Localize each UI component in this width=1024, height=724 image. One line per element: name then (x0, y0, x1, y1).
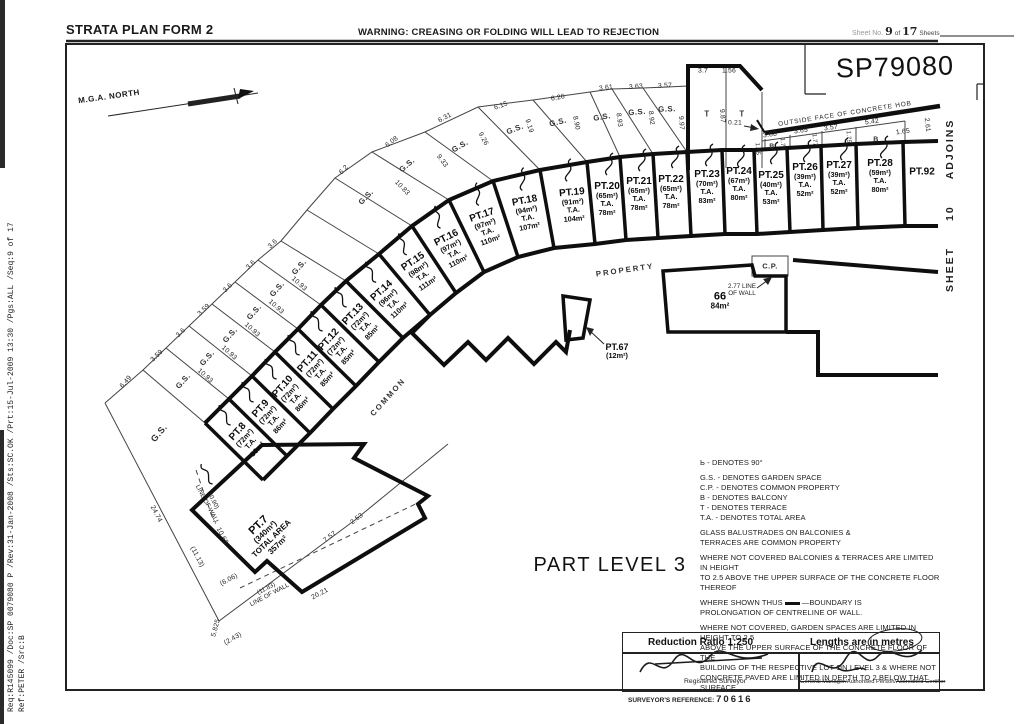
lot-pt22: PT.22(65m²) T.A.78m² (658, 174, 684, 210)
cert-kept: Authorised Person/ (847, 679, 896, 685)
adjoins-word: ADJOINS (944, 119, 956, 180)
dimension: 1.56 (722, 68, 736, 75)
legend-note: GLASS BALUSTRADES ON BALCONIES & (700, 528, 942, 538)
lot-pt25: PT.25(40m²) T.A.53m² (758, 170, 784, 206)
lot-pt26: PT.26(39m²) T.A.52m² (792, 162, 818, 198)
reduction-ratio: Reduction Ratio 1:250 (648, 637, 753, 648)
balcony-label: B (769, 144, 775, 151)
surveyor-reference: SURVEYOR'S REFERENCE: 70616 (628, 694, 753, 705)
dimension: 9.87 (718, 109, 726, 123)
strata-plan-sheet: STRATA PLAN FORM 2 WARNING: CREASING OR … (0, 0, 1024, 724)
lot-pt27: PT.27(39m²) T.A.52m² (826, 160, 852, 196)
cert-struck: General Manager/ (800, 679, 847, 685)
dimension: 9.97 (677, 116, 685, 130)
legend-note: —BOUNDARY IS (802, 598, 862, 607)
common-property-label: C.P. (762, 262, 778, 271)
scan-metadata: Req:R145099 /Doc:SP 0079080 P /Rev:31-Ja… (6, 56, 28, 712)
dimension: 1.75 (754, 143, 761, 156)
lot-pt20: PT.20(65m²) T.A.78m² (594, 181, 620, 217)
dimension: 0.21 (728, 120, 742, 127)
lot-66: 6684m² (711, 290, 730, 311)
legend-b: B - DENOTES BALCONY (700, 493, 942, 503)
garden-space-label: G.S. (658, 104, 676, 114)
warning-text: WARNING: CREASING OR FOLDING WILL LEAD T… (358, 27, 659, 38)
lengths-note: Lengths are in metres (810, 637, 914, 648)
lot-pt67: PT.67(12m²) (605, 342, 628, 360)
form-title: STRATA PLAN FORM 2 (66, 22, 213, 37)
plan-number: SP79080 (806, 50, 985, 86)
registered-surveyor-label: Registered Surveyor (660, 678, 770, 685)
scan-artifact (0, 0, 5, 168)
sheet-word: Sheets (919, 30, 939, 37)
legend-note: BUILDING OF THE RESPECTIVE LOT ON LEVEL … (700, 663, 942, 673)
scan-metadata-line1: Req:R145099 /Doc:SP 0079080 P /Rev:31-Ja… (6, 56, 17, 712)
legend-gs: G.S. - DENOTES GARDEN SPACE (700, 473, 942, 483)
scan-metadata-line2: Ref:PETER /Src:B (17, 56, 28, 712)
lot-pt92: PT.92 (909, 166, 935, 177)
garden-space-label: G.S. (628, 107, 646, 118)
legend-note: TO 2.5 ABOVE THE UPPER SURFACE OF THE CO… (700, 573, 942, 593)
legend: Ь - DENOTES 90° G.S. - DENOTES GARDEN SP… (700, 458, 942, 693)
boundary-bar-icon (785, 602, 800, 605)
dimension: 1.75 (845, 131, 852, 144)
sheet-of: of (895, 30, 900, 37)
dimension: 3.63 (629, 83, 643, 91)
certifier-label: General Manager/Authorised Person/Accred… (800, 679, 938, 685)
sheet-number: Sheet No. 9 of 17 Sheets (852, 25, 940, 38)
legend-cp: C.P. - DENOTES COMMON PROPERTY (700, 483, 942, 493)
adjoins-sheet-word: SHEET (944, 247, 956, 292)
legend-note: WHERE NOT COVERED BALCONIES & TERRACES A… (700, 553, 942, 573)
dimension: 1.73 (779, 138, 786, 151)
adjoins-sheet-10: SHEET 10 ADJOINS (944, 92, 956, 292)
legend-ta: T.A. - DENOTES TOTAL AREA (700, 513, 942, 523)
cert-struck: Accredited Certifier (896, 679, 945, 685)
sheet-no: 9 (885, 25, 893, 38)
sheet-label: Sheet No. (852, 30, 883, 37)
legend-90: - DENOTES 90° (707, 458, 763, 467)
terrace-label: T (704, 110, 709, 119)
level-title: PART LEVEL 3 (500, 554, 720, 577)
dimension: 2.61 (923, 118, 931, 133)
legend-note: WHERE SHOWN THUS (700, 598, 783, 607)
surveyor-reference-value: 70616 (716, 694, 752, 705)
dimension: 3.7 (698, 68, 708, 75)
sheet-total: 17 (902, 25, 917, 38)
dimension: 1.77 (811, 134, 818, 147)
dimension: 3.57 (658, 82, 672, 89)
line-of-wall-note: 2.77 LINEOF WALL (728, 283, 756, 297)
lot-pt28: PT.28(59m²) T.A.80m² (867, 158, 893, 194)
scan-artifact (0, 430, 4, 724)
balcony-label: B (873, 137, 879, 144)
dimension: 8.92 (647, 111, 655, 126)
lot-pt19: PT.19(91m²) T.A.104m² (559, 186, 588, 224)
right-angle-icon: Ь (700, 458, 705, 467)
legend-note: PROLONGATION OF CENTRELINE OF WALL. (700, 608, 942, 618)
lot-pt23: PT.23(70m²) T.A.83m² (694, 169, 720, 205)
terrace-label: T (739, 110, 744, 119)
legend-note: TERRACES ARE COMMON PROPERTY (700, 538, 942, 548)
legend-t: T - DENOTES TERRACE (700, 503, 942, 513)
lot-pt21: PT.21(65m²) T.A.78m² (626, 176, 652, 212)
lot-pt24: PT.24(67m²) T.A.80m² (726, 166, 752, 202)
surveyor-reference-label: SURVEYOR'S REFERENCE: (628, 697, 714, 704)
adjoins-sheet-number: 10 (944, 205, 956, 221)
